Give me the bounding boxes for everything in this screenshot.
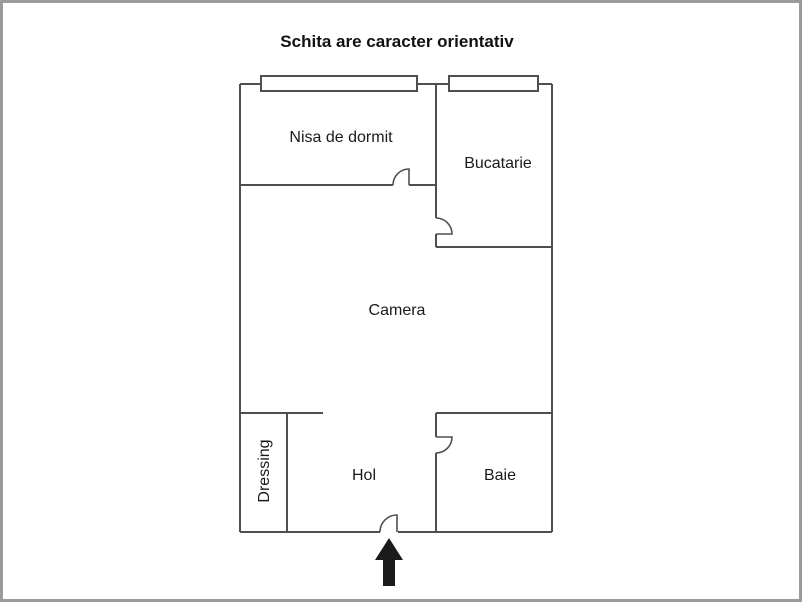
door-arc-nisa: [393, 169, 409, 185]
room-label-bucatarie: Bucatarie: [464, 155, 532, 172]
room-label-dressing: Dressing: [256, 439, 273, 502]
room-label-hol: Hol: [352, 467, 376, 484]
door-arc-entrance: [380, 515, 397, 532]
floorplan: [240, 76, 552, 586]
room-label-baie: Baie: [484, 467, 516, 484]
room-label-nisa: Nisa de dormit: [289, 129, 393, 146]
room-label-camera: Camera: [369, 302, 426, 319]
window-icon-bucatarie: [449, 76, 538, 91]
window-icon-nisa: [261, 76, 417, 91]
door-arc-bucatarie: [436, 218, 452, 234]
floorplan-canvas: Schita are caracter orientativ: [3, 3, 799, 599]
entrance-arrow-icon: [375, 538, 403, 586]
plan-title: Schita are caracter orientativ: [280, 32, 514, 51]
door-arc-baie: [436, 437, 452, 453]
floorplan-frame: Schita are caracter orientativ: [0, 0, 802, 602]
